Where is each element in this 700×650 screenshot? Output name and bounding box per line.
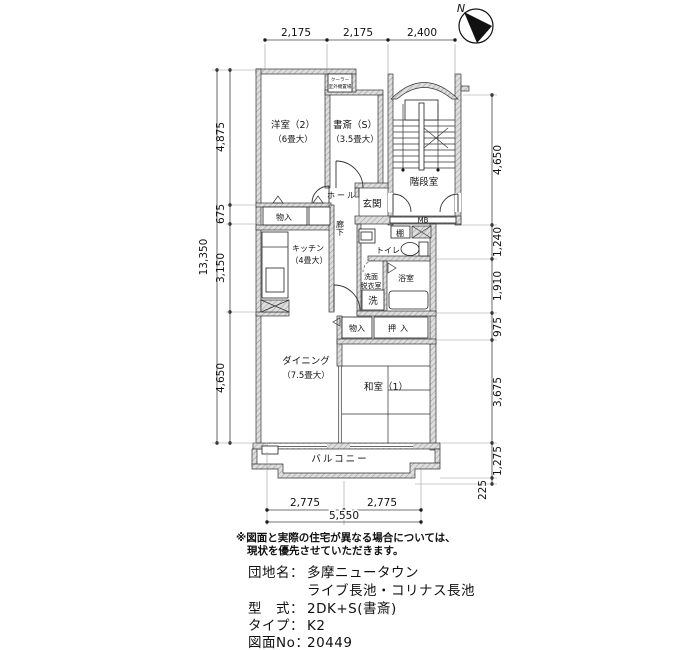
label-bathroom: 浴室 <box>398 273 414 283</box>
label-study-size: （3.5畳大） <box>331 134 379 145</box>
dim-right-1: 4,650 <box>492 145 504 175</box>
dim-left-3: 3,150 <box>215 253 227 283</box>
label-toilet: トイレ <box>376 246 400 255</box>
label-washroom-2: 脱衣室 <box>361 281 382 290</box>
drawing-no-value: 20449 <box>307 635 352 650</box>
label-hall: ホール <box>327 191 357 200</box>
type-label: タイプ： <box>248 618 304 634</box>
label-western-room: 洋室（2） <box>271 119 315 131</box>
label-kitchen-size: （4畳大） <box>290 255 327 265</box>
dim-right-7: 225 <box>477 480 489 500</box>
floor-plan-page: N 2,175 2,175 2,400 13,350 4,875 675 3,1… <box>0 0 700 650</box>
label-closet-mid: 物入 <box>349 323 365 333</box>
dimensions-left: 13,350 4,875 675 3,150 4,650 <box>198 68 256 444</box>
title-block: 団地名： 多摩ニュータウン ライブ長池・コリナス長池 型 式： 2DK+S(書斎… <box>248 564 475 650</box>
layout-label: 型 式： <box>248 601 304 617</box>
sliding-partition <box>339 366 342 443</box>
note-line-1: ※図面と実際の住宅が異なる場合については、 <box>236 531 456 544</box>
dim-right-5: 3,675 <box>492 377 504 407</box>
dim-top-3: 2,400 <box>407 27 437 39</box>
floor-plan-svg: N 2,175 2,175 2,400 13,350 4,875 675 3,1… <box>0 0 700 650</box>
label-aircon-1: クーラー <box>331 77 350 83</box>
toilet-door-arc <box>363 260 375 272</box>
drawing-no-label: 図面No： <box>248 635 309 650</box>
label-dining: ダイニング <box>282 355 330 367</box>
closet-door-marker-2 <box>313 196 323 203</box>
kitchen-counter <box>262 232 288 298</box>
label-shelf: 棚 <box>396 228 404 238</box>
label-entrance: 玄関 <box>362 198 381 210</box>
label-dining-size: （7.5畳大） <box>282 370 330 381</box>
label-corridor: 廊下 <box>336 219 345 237</box>
pipe-shaft-kitchen <box>261 300 289 312</box>
label-oshiire: 押入 <box>388 323 412 333</box>
label-kitchen: キッチン <box>292 244 324 253</box>
label-western-room-size: （6畳大） <box>273 134 312 145</box>
dim-left-4: 4,650 <box>215 363 227 393</box>
layout-value: 2DK+S(書斎) <box>307 600 397 617</box>
label-aircon-2: 室外機置場 <box>329 83 352 90</box>
label-washroom-1: 洗面 <box>364 272 378 281</box>
dim-right-4: 975 <box>492 317 504 337</box>
label-study: 書斎（S） <box>333 119 377 131</box>
dim-top-2: 2,175 <box>343 27 373 39</box>
estate-value-2: ライブ長池・コリナス長池 <box>307 582 475 599</box>
bath-door-marker <box>388 263 396 273</box>
pipe-shaft-right <box>412 226 431 238</box>
dim-bottom-2: 2,775 <box>367 497 397 509</box>
label-closet-west: 物入 <box>276 212 292 222</box>
dim-left-total: 13,350 <box>198 239 210 276</box>
dim-bottom-total: 5,550 <box>329 510 359 522</box>
dim-right-3: 1,910 <box>492 271 504 301</box>
corridor-dining-door-arc <box>334 285 360 311</box>
tatami-lines <box>342 366 430 443</box>
estate-label: 団地名： <box>248 565 304 581</box>
label-japanese-room: 和室（1） <box>364 381 408 393</box>
dim-left-1: 4,875 <box>215 122 227 152</box>
bathtub <box>389 291 428 309</box>
label-balcony: バルコニー <box>311 454 368 465</box>
entrance-door-arc <box>393 194 411 212</box>
label-washer: 洗 <box>368 295 378 307</box>
estate-value: 多摩ニュータウン <box>307 564 419 581</box>
dim-right-2: 1,240 <box>492 227 504 257</box>
dim-left-2: 675 <box>215 204 227 224</box>
compass: N <box>457 2 493 43</box>
note-line-2: 現状を優先させていただきます。 <box>247 544 403 557</box>
label-meter-box: MB <box>418 217 429 225</box>
closet-door-marker-1 <box>273 196 283 203</box>
type-value: K2 <box>307 618 325 634</box>
dimensions-top: 2,175 2,175 2,400 <box>263 27 456 74</box>
dim-bottom-1: 2,775 <box>290 497 320 509</box>
stairwell-detail <box>393 100 455 172</box>
disclaimer-notes: ※図面と実際の住宅が異なる場合については、 現状を優先させていただきます。 <box>236 531 456 557</box>
dim-right-6: 1,275 <box>492 446 504 476</box>
dim-top-1: 2,175 <box>281 27 311 39</box>
label-stairwell: 階段室 <box>410 176 439 188</box>
compass-north-label: N <box>457 2 465 15</box>
